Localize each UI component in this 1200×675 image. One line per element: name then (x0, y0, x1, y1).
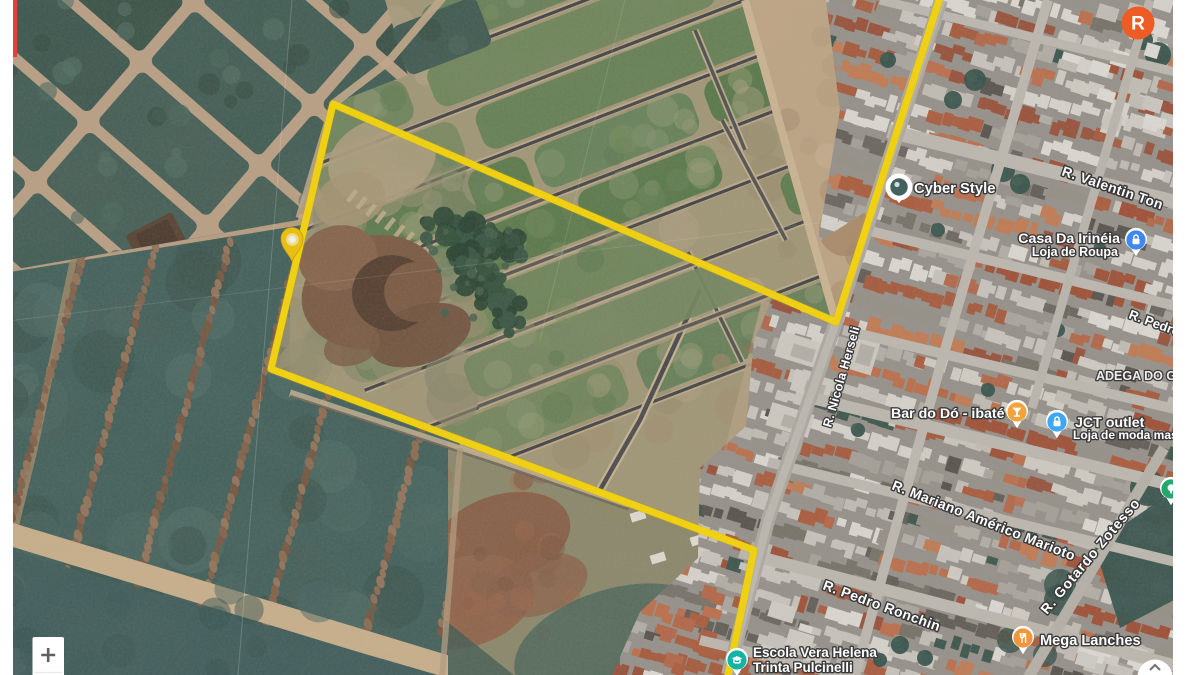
svg-text:Loja de Roupa: Loja de Roupa (1032, 245, 1119, 259)
svg-text:ADEGA DO G: ADEGA DO G (1096, 369, 1176, 383)
svg-text:Cyber Style: Cyber Style (914, 181, 995, 197)
svg-text:Trinta Pulcinelli: Trinta Pulcinelli (753, 660, 853, 675)
svg-text:Loja de moda masc: Loja de moda masc (1073, 428, 1185, 442)
svg-text:Bar do Dó - ibaté: Bar do Dó - ibaté (891, 406, 1005, 422)
svg-text:Mega Lanches: Mega Lanches (1040, 633, 1141, 649)
svg-text:R: R (1131, 14, 1145, 35)
svg-text:Escola Vera Helena: Escola Vera Helena (753, 645, 877, 660)
